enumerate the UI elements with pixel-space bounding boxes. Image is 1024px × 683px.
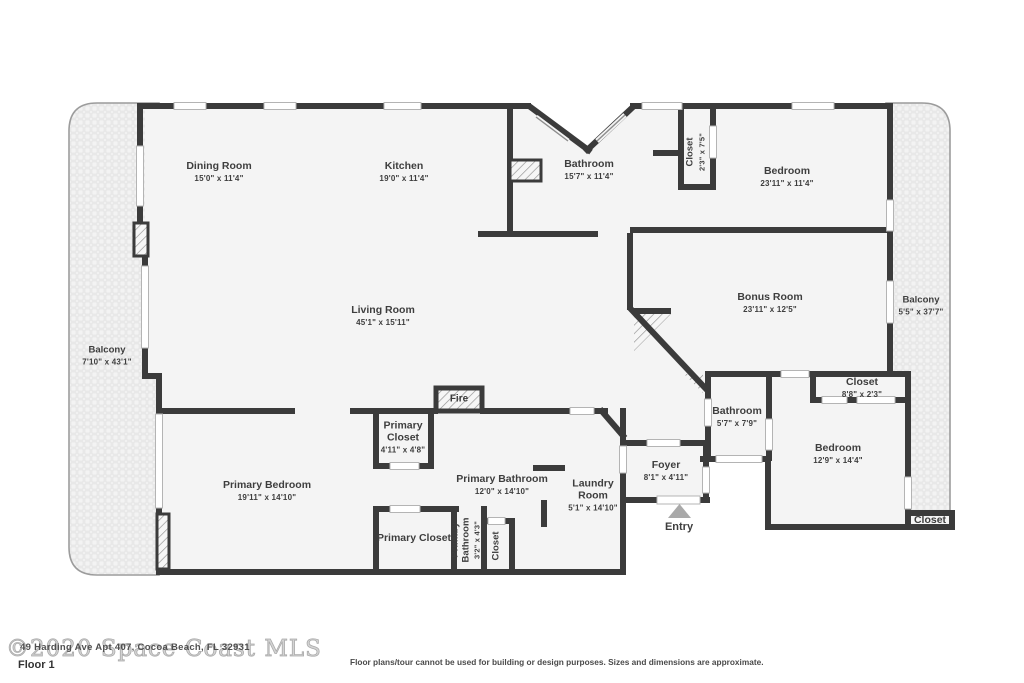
room-name: Living Room bbox=[351, 305, 415, 317]
room-name: Primary Bedroom bbox=[223, 480, 311, 492]
room-label-closet-bottom-right: Closet bbox=[914, 515, 946, 527]
room-label-living: Living Room 45'1" x 15'11" bbox=[351, 305, 415, 327]
room-dims: 23'11" x 12'5" bbox=[737, 305, 802, 314]
room-dims: 8'1" x 4'11" bbox=[644, 473, 689, 482]
room-name: Primary Closet bbox=[372, 420, 434, 444]
room-dims: 12'9" x 14'4" bbox=[813, 456, 863, 465]
room-dims: 19'0" x 11'4" bbox=[379, 174, 428, 183]
room-label-bedroom-top: Bedroom 23'11" x 11'4" bbox=[760, 166, 813, 188]
room-dims: 3'2" x 4'3" bbox=[473, 509, 482, 571]
room-dims: 12'0" x 14'10" bbox=[456, 487, 548, 496]
room-dims: 45'1" x 15'11" bbox=[351, 318, 415, 327]
room-name: Closet bbox=[914, 515, 946, 527]
room-label-laundry: Laundry Room 5'1" x 14'10" bbox=[562, 478, 624, 512]
room-label-balcony-left: Balcony 7'10" x 43'1" bbox=[82, 346, 132, 367]
room-label-primary-bathroom-small: Primary Bathroom 3'2" x 4'3" bbox=[450, 509, 481, 571]
room-label-primary-bedroom: Primary Bedroom 19'11" x 14'10" bbox=[223, 480, 311, 502]
room-label-kitchen: Kitchen 19'0" x 11'4" bbox=[379, 161, 428, 183]
disclaimer-text: Floor plans/tour cannot be used for buil… bbox=[350, 657, 764, 667]
room-dims: 2'3" x 7'5" bbox=[697, 133, 706, 171]
floorplan-page: Dining Room 15'0" x 11'4" Kitchen 19'0" … bbox=[0, 0, 1024, 683]
room-dims: 15'0" x 11'4" bbox=[186, 174, 251, 183]
room-name: Balcony bbox=[899, 296, 944, 307]
floor-label: Floor 1 bbox=[18, 659, 55, 671]
room-name: Bathroom bbox=[712, 406, 762, 418]
room-dims: 5'5" x 37'7" bbox=[899, 307, 944, 316]
entry-arrow-icon bbox=[668, 504, 691, 518]
fireplace-label: Fire bbox=[450, 394, 468, 405]
room-dims: 8'8" x 2'3" bbox=[842, 390, 882, 399]
room-dims: 5'1" x 14'10" bbox=[562, 503, 624, 512]
room-name: Bonus Room bbox=[737, 292, 802, 304]
room-label-primary-closet-upper: Primary Closet 4'11" x 4'8" bbox=[372, 420, 434, 454]
room-name: Closet bbox=[842, 377, 882, 389]
floorplan-svg bbox=[0, 0, 1024, 683]
room-name: Closet bbox=[686, 133, 697, 171]
room-name: Bedroom bbox=[760, 166, 813, 178]
room-label-dining: Dining Room 15'0" x 11'4" bbox=[186, 161, 251, 183]
room-name: Dining Room bbox=[186, 161, 251, 173]
room-label-balcony-right: Balcony 5'5" x 37'7" bbox=[899, 296, 944, 317]
room-name: Primary Bathroom bbox=[450, 509, 471, 571]
room-dims: 7'10" x 43'1" bbox=[82, 357, 132, 366]
room-name: Balcony bbox=[82, 346, 132, 357]
entry-label: Entry bbox=[665, 521, 693, 533]
room-label-closet-small: Closet bbox=[492, 531, 503, 560]
room-label-closet-mid: Closet 8'8" x 2'3" bbox=[842, 377, 882, 399]
room-name: Primary Closet bbox=[377, 533, 451, 545]
room-label-bathroom-mid: Bathroom 5'7" x 7'9" bbox=[712, 406, 762, 428]
room-label-closet-top: Closet 2'3" x 7'5" bbox=[686, 133, 707, 171]
room-name: Foyer bbox=[644, 460, 689, 472]
address-overlay: 49 Harding Ave Apt 407, Cocoa Beach, FL … bbox=[20, 642, 250, 653]
room-label-bathroom-top: Bathroom 15'7" x 11'4" bbox=[564, 159, 614, 181]
room-name: Closet bbox=[492, 531, 503, 560]
room-dims: 5'7" x 7'9" bbox=[712, 419, 762, 428]
room-label-bedroom-right: Bedroom 12'9" x 14'4" bbox=[813, 443, 863, 465]
room-dims: 4'11" x 4'8" bbox=[372, 445, 434, 454]
room-label-bonus: Bonus Room 23'11" x 12'5" bbox=[737, 292, 802, 314]
room-name: Bedroom bbox=[813, 443, 863, 455]
room-label-primary-bathroom: Primary Bathroom 12'0" x 14'10" bbox=[456, 474, 548, 496]
room-dims: 15'7" x 11'4" bbox=[564, 172, 614, 181]
room-name: Kitchen bbox=[379, 161, 428, 173]
room-name: Primary Bathroom bbox=[456, 474, 548, 486]
room-name: Bathroom bbox=[564, 159, 614, 171]
room-label-foyer: Foyer 8'1" x 4'11" bbox=[644, 460, 689, 482]
room-dims: 19'11" x 14'10" bbox=[223, 493, 311, 502]
room-label-primary-closet-lower: Primary Closet bbox=[377, 533, 451, 545]
room-dims: 23'11" x 11'4" bbox=[760, 179, 813, 188]
room-name: Laundry Room bbox=[562, 478, 624, 502]
